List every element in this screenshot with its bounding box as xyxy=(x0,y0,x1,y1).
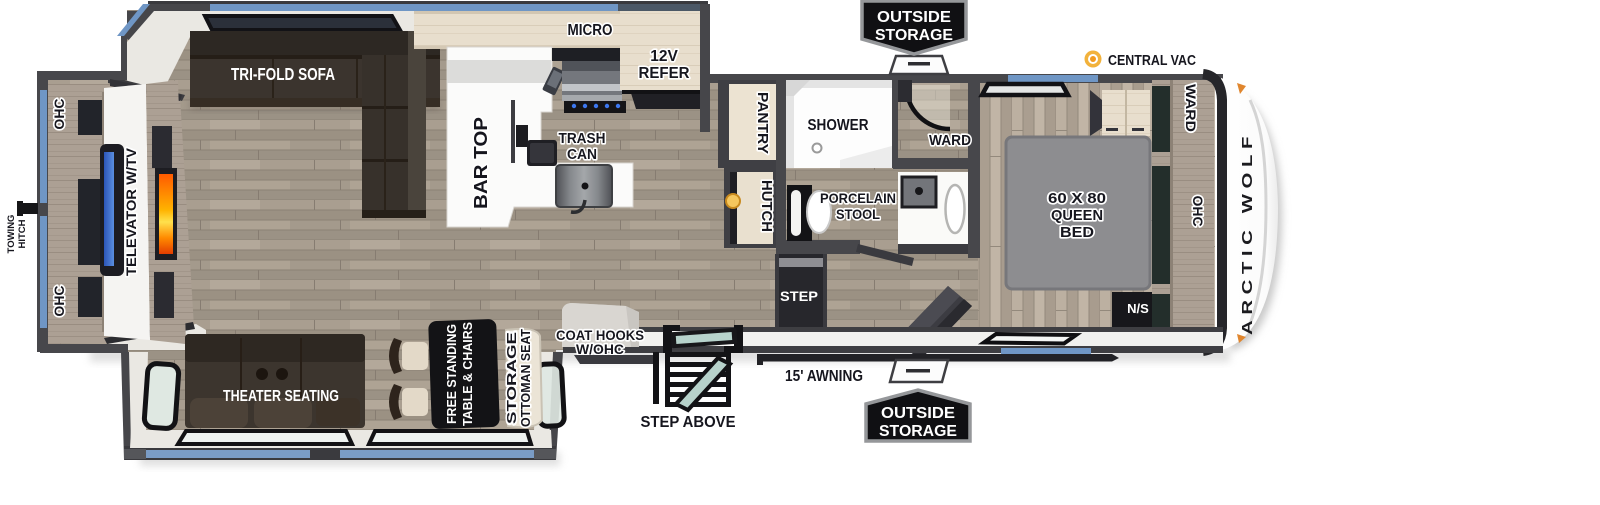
svg-text:STEP ABOVE: STEP ABOVE xyxy=(641,414,736,431)
svg-text:TABLE & CHAIRS: TABLE & CHAIRS xyxy=(460,322,475,426)
svg-text:15' AWNING: 15' AWNING xyxy=(785,368,863,385)
svg-text:12V: 12V xyxy=(650,48,678,65)
svg-text:WARD: WARD xyxy=(929,133,971,149)
svg-text:ARCTIC WOLF: ARCTIC WOLF xyxy=(1240,131,1256,335)
svg-text:OUTSIDE: OUTSIDE xyxy=(877,9,951,26)
svg-text:MICRO: MICRO xyxy=(568,22,613,39)
svg-text:FREE STANDING: FREE STANDING xyxy=(444,324,459,424)
svg-text:BED: BED xyxy=(1060,224,1094,241)
svg-text:REFER: REFER xyxy=(639,65,690,82)
svg-text:TOWING: TOWING xyxy=(6,215,17,254)
svg-text:OHC: OHC xyxy=(51,285,67,316)
svg-text:COAT HOOKS: COAT HOOKS xyxy=(556,328,644,343)
svg-text:STORAGE: STORAGE xyxy=(879,423,957,440)
svg-text:STORAGE: STORAGE xyxy=(875,27,953,44)
svg-text:OHC: OHC xyxy=(51,98,67,129)
svg-text:STORAGE: STORAGE xyxy=(505,332,519,424)
svg-text:OTTOMAN SEAT: OTTOMAN SEAT xyxy=(519,329,533,427)
svg-text:60 X 80: 60 X 80 xyxy=(1048,190,1106,207)
svg-text:PANTRY: PANTRY xyxy=(754,92,771,154)
svg-text:STOOL: STOOL xyxy=(836,206,880,222)
svg-text:OUTSIDE: OUTSIDE xyxy=(881,405,955,422)
svg-text:TELEVATOR W/TV: TELEVATOR W/TV xyxy=(123,147,139,276)
svg-text:W/OHC: W/OHC xyxy=(576,342,624,357)
svg-text:THEATER SEATING: THEATER SEATING xyxy=(223,388,339,405)
svg-text:PORCELAIN: PORCELAIN xyxy=(820,190,896,206)
svg-text:STEP: STEP xyxy=(780,288,818,304)
svg-text:HUTCH: HUTCH xyxy=(758,180,774,232)
svg-text:CAN: CAN xyxy=(567,147,597,163)
svg-text:QUEEN: QUEEN xyxy=(1051,207,1103,224)
svg-text:CENTRAL VAC: CENTRAL VAC xyxy=(1108,53,1196,69)
svg-text:TRI-FOLD SOFA: TRI-FOLD SOFA xyxy=(231,64,335,84)
svg-text:N/S: N/S xyxy=(1127,301,1149,316)
svg-text:BAR TOP: BAR TOP xyxy=(471,117,491,209)
svg-text:HITCH: HITCH xyxy=(17,219,28,248)
svg-text:TRASH: TRASH xyxy=(559,131,606,147)
svg-text:OHC: OHC xyxy=(1190,195,1206,226)
svg-text:WARD: WARD xyxy=(1183,84,1199,132)
svg-text:SHOWER: SHOWER xyxy=(808,117,869,134)
